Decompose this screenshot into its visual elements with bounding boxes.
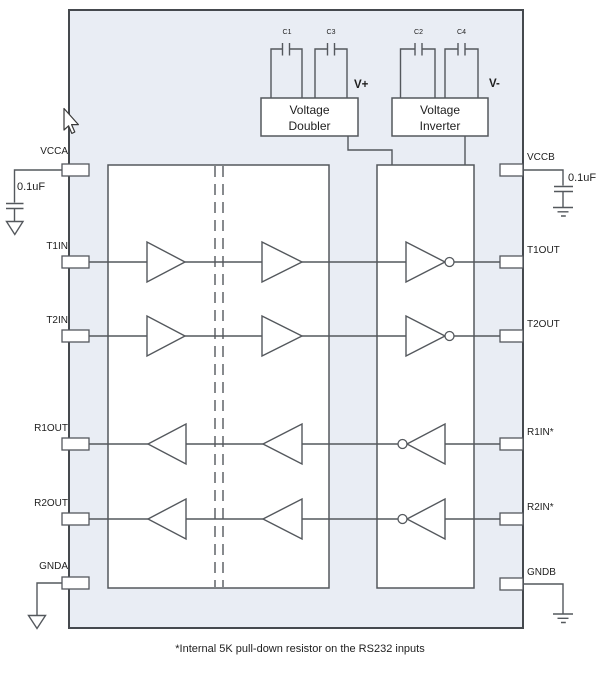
voltage-doubler-label: Voltage Doubler <box>261 100 358 134</box>
pin-label-r2out: R2OUT <box>34 498 68 509</box>
gnda-wire <box>37 583 62 616</box>
pin-label-r1in: R1IN* <box>527 427 554 438</box>
vccb-decoupling-cap-symbol <box>523 170 573 207</box>
v-plus-label: V+ <box>354 79 368 91</box>
pin-label-t2in: T2IN <box>46 315 68 326</box>
footnote: *Internal 5K pull-down resistor on the R… <box>0 643 600 656</box>
vcca-decoupling-cap-symbol <box>6 170 62 222</box>
pin-box-t2in <box>62 330 89 342</box>
pin-box-r1out <box>62 438 89 450</box>
pin-box-vccb <box>500 164 523 176</box>
pin-label-vccb: VCCB <box>527 152 555 163</box>
decoupling-value-right: 0.1uF <box>568 172 596 184</box>
decoupling-value-left: 0.1uF <box>17 181 45 193</box>
pin-label-t2out: T2OUT <box>527 319 560 330</box>
pin-box-t1in <box>62 256 89 268</box>
pin-label-gnda: GNDA <box>39 561 68 572</box>
gndb-wire <box>523 584 563 614</box>
rs232-transceiver-block-diagram: VCCA T1IN T2IN R1OUT R2OUT GNDA VCCB T1O… <box>0 0 600 673</box>
pin-box-r2in <box>500 513 523 525</box>
cap-label-c2: C2 <box>414 29 423 37</box>
cap-label-c4: C4 <box>457 29 466 37</box>
t2-inverter-bubble <box>445 332 454 341</box>
pin-box-gndb <box>500 578 523 590</box>
pin-box-t1out <box>500 256 523 268</box>
pin-label-gndb: GNDB <box>527 567 556 578</box>
pin-label-t1in: T1IN <box>46 241 68 252</box>
voltage-inverter-label: Voltage Inverter <box>392 100 488 134</box>
pin-label-r1out: R1OUT <box>34 423 68 434</box>
cap-label-c3: C3 <box>327 29 336 37</box>
r1-inverter-bubble <box>398 440 407 449</box>
gndb-ground-symbol <box>553 614 573 623</box>
v-minus-label: V- <box>489 78 500 90</box>
pin-box-t2out <box>500 330 523 342</box>
pin-label-t1out: T1OUT <box>527 245 560 256</box>
pin-box-vcca <box>62 164 89 176</box>
vccb-ground-symbol <box>553 208 573 217</box>
pin-box-gnda <box>62 577 89 589</box>
pin-label-r2in: R2IN* <box>527 502 554 513</box>
pin-box-r2out <box>62 513 89 525</box>
gnda-ground-symbol <box>29 616 46 629</box>
pin-label-vcca: VCCA <box>40 146 68 157</box>
vcca-ground-symbol <box>7 222 24 235</box>
pin-box-r1in <box>500 438 523 450</box>
t1-inverter-bubble <box>445 258 454 267</box>
r2-inverter-bubble <box>398 515 407 524</box>
cap-label-c1: C1 <box>283 29 292 37</box>
